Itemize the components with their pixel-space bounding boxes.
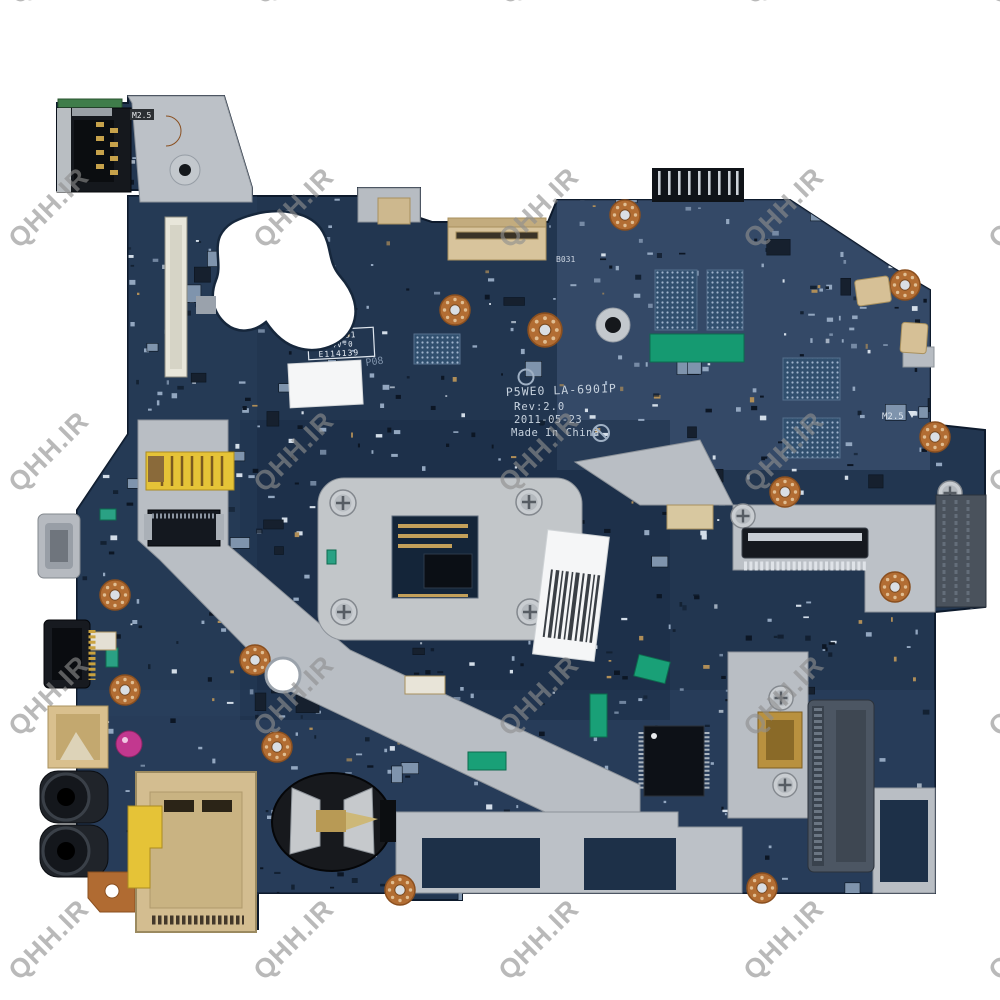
watermark-text: QHH.IR bbox=[492, 0, 584, 10]
sd-card-reader bbox=[128, 772, 256, 932]
green-component-2 bbox=[590, 694, 607, 737]
motherboard-product-photo: P5WE0 LA-6901P Rev:2.0 2011-05-23 Made I… bbox=[0, 0, 1000, 1000]
watermark-text: QHH.IR bbox=[737, 0, 829, 10]
blank-label-sticker bbox=[288, 360, 363, 408]
watermark-text: QHH.IR bbox=[2, 161, 94, 253]
green-inductor-large bbox=[650, 334, 744, 362]
green-led-3 bbox=[327, 550, 336, 564]
watermark-text: QHH.IR bbox=[2, 893, 94, 985]
silkscreen-label-m25-right: M2.5 bbox=[882, 412, 904, 422]
bracket-screw-3 bbox=[773, 773, 797, 797]
watermark-text: QHH.IR bbox=[2, 405, 94, 497]
cpu-screw-tl bbox=[330, 490, 356, 516]
cpu-die bbox=[424, 554, 472, 588]
watermark-text: QHH.IR bbox=[982, 649, 1000, 741]
green-component-1 bbox=[468, 752, 506, 770]
connector-right-2 bbox=[900, 322, 928, 354]
bracket-screw-1 bbox=[731, 504, 755, 528]
watermark-text: QHH.IR bbox=[2, 0, 94, 10]
audio-jack-mic bbox=[40, 825, 108, 877]
pin-header bbox=[652, 168, 744, 202]
watermark-text: QHH.IR bbox=[247, 893, 339, 985]
bracket-labels: M2.5 bbox=[130, 109, 154, 120]
kapton-tape-flex-cable bbox=[146, 452, 234, 490]
ivory-connector-1 bbox=[405, 676, 445, 694]
cpu-screw-bl bbox=[331, 599, 357, 625]
small-connector-top bbox=[378, 198, 410, 224]
green-led-2 bbox=[100, 509, 116, 520]
sata-hdd-connector bbox=[808, 700, 874, 872]
green-led-1 bbox=[106, 648, 118, 667]
watermark-text: QHH.IR bbox=[737, 893, 829, 985]
motherboard-photo-canvas: P5WE0 LA-6901P Rev:2.0 2011-05-23 Made I… bbox=[0, 0, 1000, 1000]
qfp-chip bbox=[641, 726, 707, 796]
label-m25-top: M2.5 bbox=[132, 111, 151, 120]
magenta-component bbox=[116, 731, 142, 757]
lvds-connector bbox=[144, 510, 224, 546]
watermark-text: QHH.IR bbox=[982, 893, 1000, 985]
watermark-text: QHH.IR bbox=[982, 161, 1000, 253]
watermark-text: QHH.IR bbox=[982, 0, 1000, 10]
audio-jack-headphone bbox=[40, 771, 108, 823]
cpu-screw-tr bbox=[516, 489, 542, 515]
right-edge-connector bbox=[936, 495, 986, 607]
vga-port bbox=[38, 514, 80, 578]
usb-port bbox=[48, 706, 108, 768]
small-gray-tab bbox=[196, 296, 216, 314]
watermark-text: QHH.IR bbox=[247, 0, 339, 10]
battery-socket-tab bbox=[380, 800, 396, 842]
watermark-text: QHH.IR bbox=[492, 893, 584, 985]
connector-right-1 bbox=[854, 276, 891, 306]
connector-mid-right bbox=[667, 505, 713, 529]
silkscreen-label-b031: B031 bbox=[556, 255, 575, 264]
